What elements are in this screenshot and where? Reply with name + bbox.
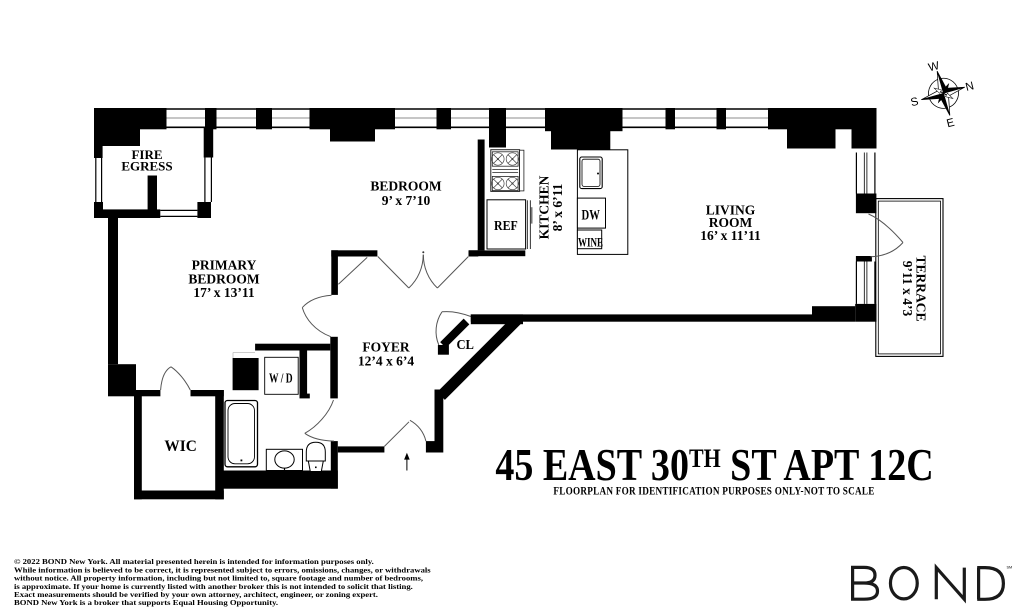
svg-text:FOYER: FOYER	[362, 340, 410, 355]
svg-text:17’ x 13’11: 17’ x 13’11	[193, 285, 254, 300]
svg-text:KITCHEN8’ x 6’11: KITCHEN8’ x 6’11	[537, 175, 566, 239]
svg-text:without notice. All property i: without notice. All property information…	[14, 574, 423, 582]
svg-text:EGRESS: EGRESS	[121, 159, 172, 174]
svg-text:© 2022 BOND New York. All mate: © 2022 BOND New York. All material prese…	[14, 558, 374, 566]
svg-text:is approximate. If your home i: is approximate. If your home is currentl…	[14, 582, 413, 590]
svg-text:W / D: W / D	[269, 369, 293, 385]
svg-text:Exact measurements should be v: Exact measurements should be verified by…	[14, 590, 378, 598]
svg-text:SM: SM	[1007, 566, 1013, 570]
svg-text:PRIMARY: PRIMARY	[192, 258, 257, 273]
svg-text:TERRACE9’11 x 4’3: TERRACE9’11 x 4’3	[900, 255, 929, 321]
svg-text:BEDROOM: BEDROOM	[370, 179, 442, 194]
svg-text:DW: DW	[582, 205, 600, 222]
svg-text:FLOORPLAN FOR IDENTIFICATION P: FLOORPLAN FOR IDENTIFICATION PURPOSES ON…	[553, 486, 874, 498]
svg-text:REF: REF	[494, 218, 518, 233]
svg-text:BEDROOM: BEDROOM	[188, 271, 260, 286]
svg-text:CL: CL	[456, 337, 474, 353]
svg-text:WIC: WIC	[164, 438, 196, 455]
svg-text:16’ x 11’11: 16’ x 11’11	[700, 228, 761, 243]
svg-text:While information is believed: While information is believed to be corr…	[14, 566, 431, 574]
svg-text:9’ x 7’10: 9’ x 7’10	[382, 193, 431, 208]
svg-text:WINE: WINE	[578, 236, 603, 250]
svg-text:BOND New York is a broker that: BOND New York is a broker that supports …	[14, 599, 278, 607]
svg-text:12’4 x 6’4: 12’4 x 6’4	[358, 354, 414, 369]
